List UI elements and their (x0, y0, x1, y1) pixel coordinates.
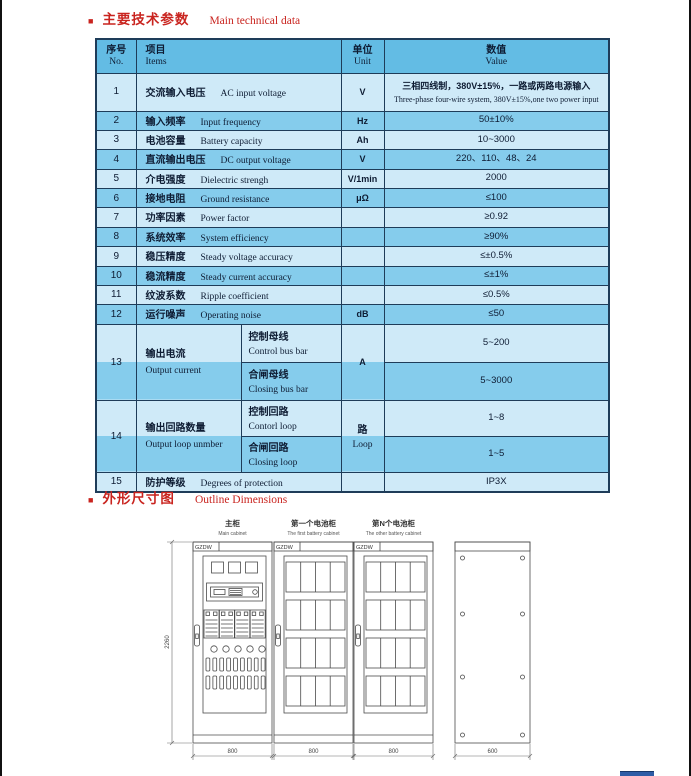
unit-cell: μΩ (341, 189, 384, 208)
value-cell: 1~5 (384, 436, 609, 472)
no-cell: 2 (96, 111, 136, 130)
unit-zh: 路 (344, 422, 382, 439)
main-cabinet-label-zh: 主柜 (225, 518, 240, 528)
unit-cell: Ah (341, 130, 384, 149)
value-cell: ≥90% (384, 227, 609, 246)
value-cell: ≥0.92 (384, 208, 609, 227)
item-zh: 输出回路数量 (146, 420, 239, 437)
item-zh: 介电强度 (146, 175, 186, 186)
section-title-zh: 外形尺寸图 (102, 487, 175, 507)
no-cell: 1 (96, 73, 136, 111)
no-cell: 3 (96, 130, 136, 149)
item-cell: 接地电阻Ground resistance (136, 189, 341, 208)
value-cell: ≤0.5% (384, 286, 609, 305)
no-cell: 10 (96, 266, 136, 285)
section-title-zh: 主要技术参数 (102, 8, 189, 28)
spec-row-8: 8 系统效率System efficiency ≥90% (96, 227, 609, 246)
item-cell: 电池容量Battery capacity (136, 130, 341, 149)
unit-cell: V (341, 73, 384, 111)
item-zh: 稳压精度 (146, 252, 186, 263)
item-en: Operating noise (201, 311, 261, 321)
item-zh: 稳流精度 (146, 272, 186, 283)
unit-cell: A (341, 324, 384, 400)
value-cell: 50±10% (384, 111, 609, 130)
first-battery-cabinet-tag: GZDW (276, 545, 294, 551)
item-en: Dielectric strengh (201, 176, 269, 186)
unit-en: Loop (344, 439, 382, 451)
spec-row-3: 3 电池容量Battery capacity Ah 10~3000 (96, 130, 609, 149)
sub-item-cell: 控制回路Contorl loop (241, 400, 341, 436)
depth-dimension-label: 600 (487, 749, 498, 755)
spec-row-7: 7 功率因素Power factor ≥0.92 (96, 208, 609, 227)
spec-row-14a: 14 输出回路数量Output loop unmber 控制回路Contorl … (96, 400, 609, 436)
value-cell: ≤±0.5% (384, 247, 609, 266)
spec-row-4: 4 直流输出电压DC output voltage V 220、110、48、2… (96, 150, 609, 169)
item-en: DC output voltage (221, 156, 291, 166)
unit-cell (341, 247, 384, 266)
item-cell: 输出回路数量Output loop unmber (136, 400, 241, 472)
height-dimension-label: 2260 (165, 635, 171, 649)
first-battery-cabinet-label-zh: 第一个电池柜 (291, 518, 336, 528)
sub-item-cell: 合闸回路Closing loop (241, 436, 341, 472)
value-cell: 5~200 (384, 324, 609, 362)
section-title-en: Main technical data (209, 15, 300, 27)
spec-row-13a: 13 输出电流Output current 控制母线Control bus ba… (96, 324, 609, 362)
sub-item-en: Contorl loop (249, 421, 339, 433)
value-cell: 1~8 (384, 400, 609, 436)
item-cell: 输入频率Input frequency (136, 111, 341, 130)
item-en: Steady voltage accuracy (201, 253, 293, 263)
value-cell: 2000 (384, 169, 609, 188)
value-cell: ≤±1% (384, 266, 609, 285)
no-cell: 12 (96, 305, 136, 324)
height-dimension: 2260 (165, 540, 192, 745)
value-cell: 220、110、48、24 (384, 150, 609, 169)
item-zh: 功率因素 (146, 213, 186, 224)
header-items-cell: 项目Items (136, 39, 341, 73)
no-cell: 11 (96, 286, 136, 305)
item-en: AC input voltage (221, 89, 286, 99)
unit-cell (341, 286, 384, 305)
value-cell: 5~3000 (384, 362, 609, 400)
table-header-row: 序号No. 项目Items 单位Unit 数值Value (96, 39, 609, 73)
spec-table: 序号No. 项目Items 单位Unit 数值Value 1 交流输入电压AC … (95, 38, 610, 493)
width-dimension-label: 800 (308, 749, 319, 755)
nth-battery-cabinet-label-en: The other battery cabinet (366, 531, 422, 537)
item-zh: 运行噪声 (146, 310, 186, 321)
footer-accent-bar (620, 771, 654, 776)
main-cabinet-width-dimension: 800 (191, 744, 274, 760)
item-cell: 功率因素Power factor (136, 208, 341, 227)
first-battery-cabinet-width-dimension: 800 (272, 744, 355, 760)
no-cell: 14 (96, 400, 136, 472)
datasheet-page: ■ 主要技术参数 Main technical data 序号No. 项目Ite… (0, 0, 691, 776)
item-cell: 输出电流Output current (136, 324, 241, 400)
spec-row-5: 5 介电强度Dielectric strengh V/1min 2000 (96, 169, 609, 188)
item-cell: 稳压精度Steady voltage accuracy (136, 247, 341, 266)
sub-item-zh: 控制回路 (249, 404, 339, 421)
unit-cell: Hz (341, 111, 384, 130)
no-cell: 4 (96, 150, 136, 169)
value-cell: ≤100 (384, 189, 609, 208)
nth-battery-cabinet-drawing: GZDW (354, 542, 433, 743)
sub-item-en: Closing loop (249, 457, 339, 469)
sub-item-zh: 合闸母线 (249, 367, 339, 384)
red-square-bullet-icon: ■ (88, 16, 93, 26)
section-heading-outline-dimensions: ■ 外形尺寸图 Outline Dimensions (88, 487, 287, 507)
item-en: Output loop unmber (146, 437, 239, 453)
value-cell: ≤50 (384, 305, 609, 324)
spec-row-10: 10 稳流精度Steady current accuracy ≤±1% (96, 266, 609, 285)
header-value-cell: 数值Value (384, 39, 609, 73)
item-en: Ground resistance (201, 195, 270, 205)
nth-battery-cabinet-tag: GZDW (356, 545, 374, 551)
main-cabinet-tag: GZDW (195, 545, 213, 551)
main-cabinet-drawing: GZDW (193, 542, 272, 743)
item-cell: 运行噪声Operating noise (136, 305, 341, 324)
sub-item-cell: 合闸母线Closing bus bar (241, 362, 341, 400)
spec-row-1: 1 交流输入电压AC input voltage V 三相四线制，380V±15… (96, 73, 609, 111)
item-zh: 电池容量 (146, 136, 186, 147)
unit-cell: V (341, 150, 384, 169)
no-cell: 13 (96, 324, 136, 400)
item-en: Ripple coefficient (201, 292, 269, 302)
value-zh: 三相四线制，380V±15%，一路或两路电源输入 (387, 79, 607, 94)
unit-cell (341, 208, 384, 227)
width-dimension-label: 800 (388, 749, 399, 755)
door-handle (195, 625, 200, 646)
item-en: Battery capacity (201, 137, 263, 147)
item-zh: 交流输入电压 (146, 88, 206, 99)
unit-cell (341, 227, 384, 246)
item-zh: 直流输出电压 (146, 155, 206, 166)
no-cell: 7 (96, 208, 136, 227)
value-cell: IP3X (384, 472, 609, 492)
width-dimension-label: 800 (227, 749, 238, 755)
item-en: Output current (146, 363, 239, 379)
section-heading-technical-data: ■ 主要技术参数 Main technical data (88, 8, 300, 28)
no-cell: 9 (96, 247, 136, 266)
sub-item-cell: 控制母线Control bus bar (241, 324, 341, 362)
item-zh: 输出电流 (146, 346, 239, 363)
spec-row-2: 2 输入频率Input frequency Hz 50±10% (96, 111, 609, 130)
spec-row-9: 9 稳压精度Steady voltage accuracy ≤±0.5% (96, 247, 609, 266)
item-en: Steady current accuracy (201, 273, 292, 283)
sub-item-zh: 合闸回路 (249, 440, 339, 457)
sub-item-en: Closing bus bar (249, 384, 339, 396)
sub-item-zh: 控制母线 (249, 329, 339, 346)
unit-cell: 路Loop (341, 400, 384, 472)
side-view-depth-dimension: 600 (453, 744, 532, 760)
item-en: Power factor (201, 214, 250, 224)
no-cell: 6 (96, 189, 136, 208)
unit-cell: dB (341, 305, 384, 324)
unit-cell (341, 472, 384, 492)
value-en: Three-phase four-wire system, 380V±15%,o… (387, 94, 607, 105)
item-cell: 介电强度Dielectric strengh (136, 169, 341, 188)
sub-item-en: Control bus bar (249, 346, 339, 358)
item-en: System efficiency (201, 234, 269, 244)
spec-row-11: 11 纹波系数Ripple coefficient ≤0.5% (96, 286, 609, 305)
first-battery-cabinet-drawing: GZDW (274, 542, 353, 743)
header-unit-cell: 单位Unit (341, 39, 384, 73)
item-zh: 输入频率 (146, 117, 186, 128)
item-en: Input frequency (201, 118, 261, 128)
nth-battery-cabinet-label-zh: 第N个电池柜 (372, 518, 415, 528)
spec-row-6: 6 接地电阻Ground resistance μΩ ≤100 (96, 189, 609, 208)
item-zh: 系统效率 (146, 233, 186, 244)
red-square-bullet-icon: ■ (88, 495, 93, 505)
nth-battery-cabinet-width-dimension: 800 (352, 744, 435, 760)
spec-row-12: 12 运行噪声Operating noise dB ≤50 (96, 305, 609, 324)
value-cell: 三相四线制，380V±15%，一路或两路电源输入Three-phase four… (384, 73, 609, 111)
unit-cell: V/1min (341, 169, 384, 188)
item-cell: 直流输出电压DC output voltage (136, 150, 341, 169)
unit-cell (341, 266, 384, 285)
item-zh: 接地电阻 (146, 194, 186, 205)
cabinet-side-view-drawing (455, 542, 530, 743)
item-zh: 纹波系数 (146, 291, 186, 302)
item-cell: 稳流精度Steady current accuracy (136, 266, 341, 285)
main-cabinet-label-en: Main cabinet (218, 531, 247, 537)
item-cell: 系统效率System efficiency (136, 227, 341, 246)
door-handle (276, 625, 281, 646)
header-no-cell: 序号No. (96, 39, 136, 73)
door-handle (356, 625, 361, 646)
outline-dimensions-drawing: 主柜 Main cabinet 第一个电池柜 The first battery… (0, 514, 691, 776)
item-cell: 交流输入电压AC input voltage (136, 73, 341, 111)
value-cell: 10~3000 (384, 130, 609, 149)
no-cell: 5 (96, 169, 136, 188)
no-cell: 8 (96, 227, 136, 246)
item-cell: 纹波系数Ripple coefficient (136, 286, 341, 305)
first-battery-cabinet-label-en: The first battery cabinet (287, 531, 340, 537)
section-title-en: Outline Dimensions (195, 494, 287, 506)
